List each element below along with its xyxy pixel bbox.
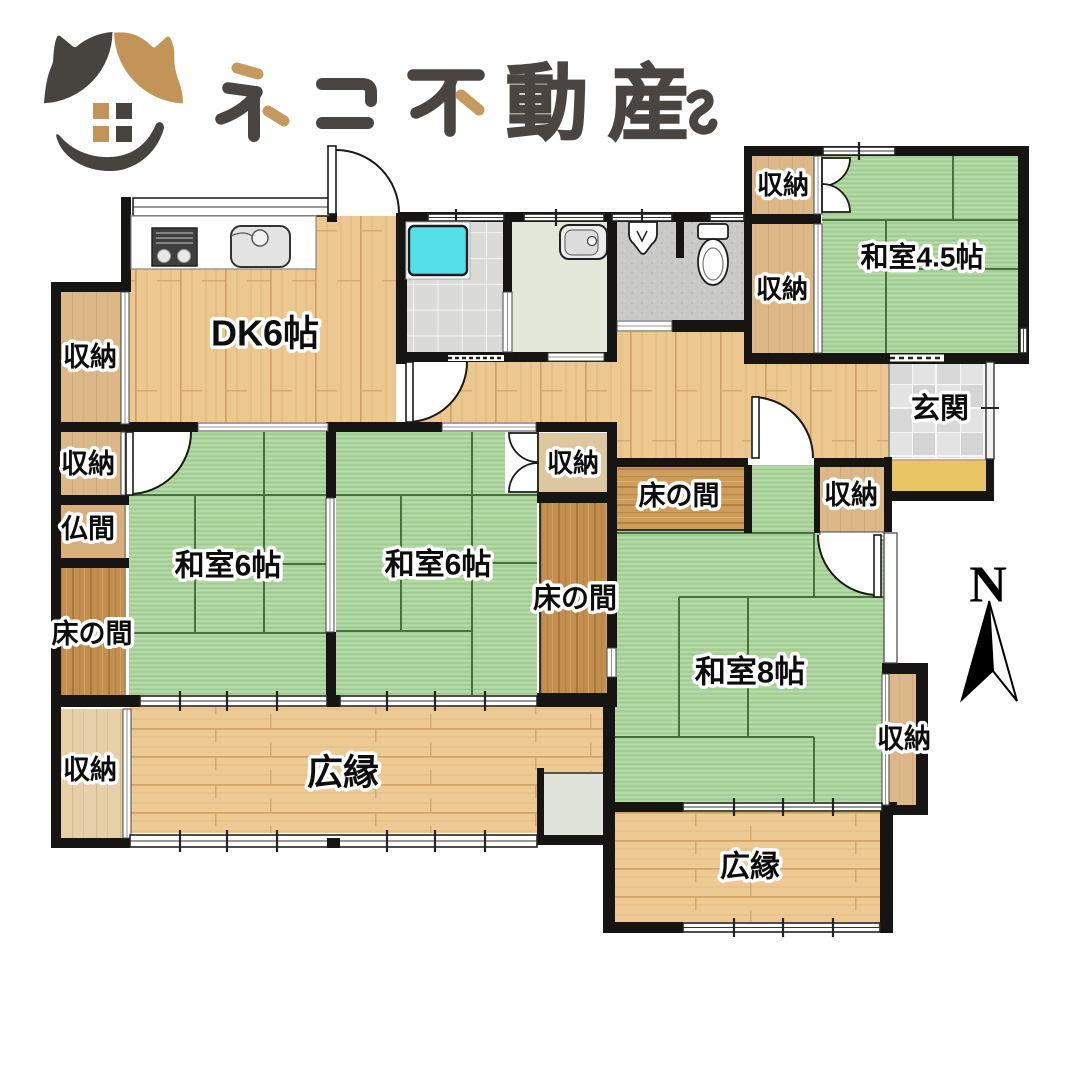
svg-text:収納: 収納	[63, 341, 117, 372]
svg-text:和室6帖: 和室6帖	[385, 548, 492, 582]
svg-text:動: 動	[506, 59, 588, 150]
svg-text:床の間: 床の間	[533, 582, 617, 614]
svg-text:産: 産	[608, 59, 690, 150]
svg-text:収納: 収納	[757, 170, 809, 200]
svg-text:床の間: 床の間	[52, 618, 133, 649]
svg-text:収納: 収納	[824, 479, 878, 510]
svg-text:和室8帖: 和室8帖	[695, 655, 805, 690]
svg-text:玄関: 玄関	[911, 391, 969, 425]
svg-text:収納: 収納	[61, 448, 115, 479]
svg-text:床の間: 床の間	[639, 480, 720, 511]
svg-text:収納: 収納	[756, 274, 808, 304]
svg-text:収納: 収納	[877, 723, 931, 754]
svg-text:DK6帖: DK6帖	[211, 313, 319, 354]
svg-text:広縁: 広縁	[307, 752, 379, 793]
svg-text:和室4.5帖: 和室4.5帖	[861, 241, 984, 273]
svg-text:和室6帖: 和室6帖	[175, 549, 282, 583]
svg-text:仏間: 仏間	[61, 514, 115, 544]
svg-text:広縁: 広縁	[720, 851, 780, 884]
svg-text:収納: 収納	[63, 754, 117, 785]
svg-text:収納: 収納	[547, 448, 599, 478]
